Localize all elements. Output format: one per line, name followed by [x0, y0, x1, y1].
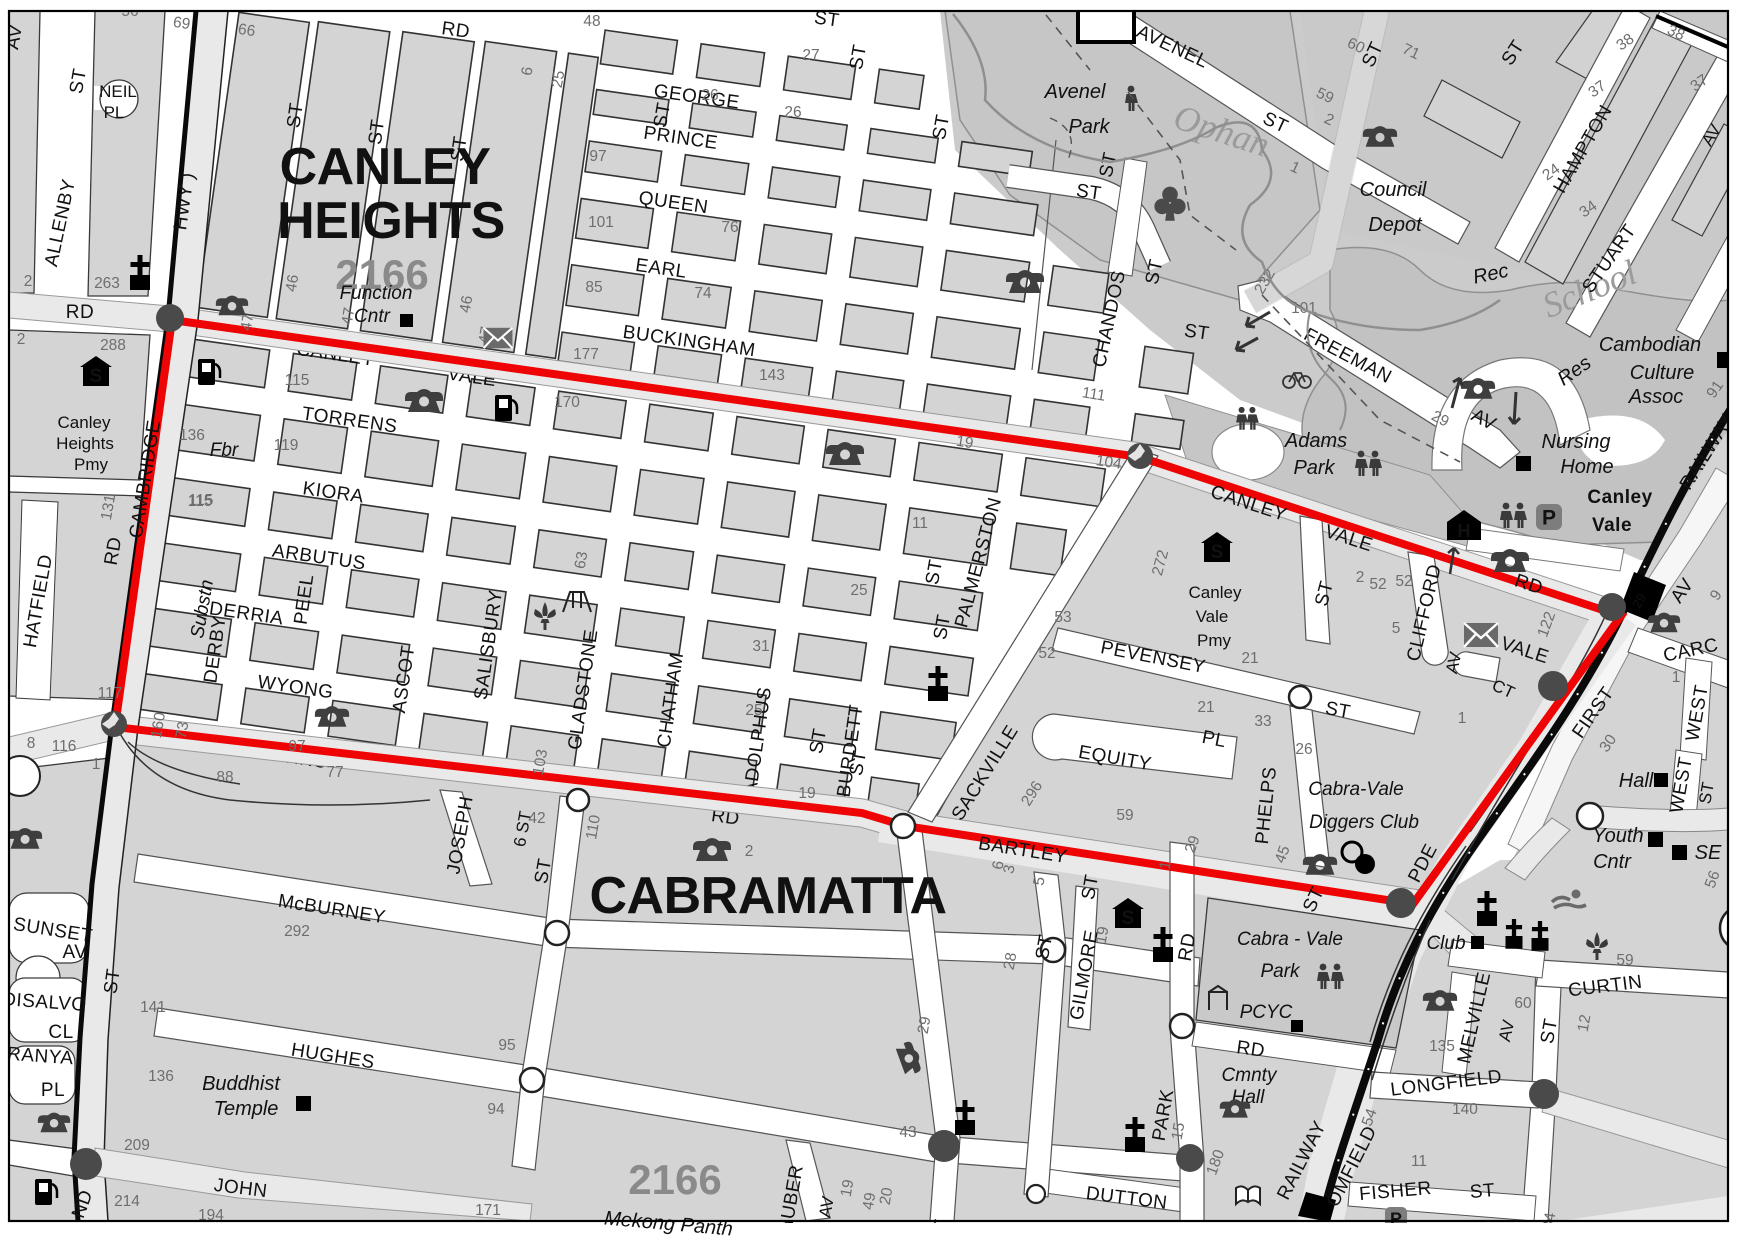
svg-text:60: 60 [1514, 995, 1532, 1012]
svg-text:Culture: Culture [1630, 362, 1694, 384]
svg-text:ST: ST [1537, 1017, 1562, 1046]
svg-text:27: 27 [802, 47, 819, 64]
svg-text:Hall: Hall [1619, 770, 1654, 792]
svg-text:15: 15 [1169, 1121, 1189, 1141]
svg-text:76: 76 [721, 219, 738, 236]
svg-text:117: 117 [98, 685, 123, 702]
svg-text:Cabra - Vale: Cabra - Vale [1237, 929, 1343, 950]
svg-text:101: 101 [588, 214, 614, 231]
svg-text:NEIL: NEIL [99, 82, 137, 101]
svg-text:ST: ST [1469, 1180, 1496, 1203]
svg-text:288: 288 [100, 337, 126, 354]
svg-text:1: 1 [1458, 710, 1467, 727]
svg-text:Temple: Temple [214, 1098, 279, 1120]
svg-text:ST: ST [846, 749, 871, 778]
svg-text:97: 97 [589, 148, 606, 165]
svg-text:73: 73 [173, 720, 193, 740]
svg-text:ST: ST [1324, 698, 1353, 723]
svg-text:143: 143 [759, 367, 785, 384]
svg-text:69: 69 [172, 14, 191, 33]
svg-text:19: 19 [1093, 925, 1113, 945]
svg-text:ST: ST [930, 613, 955, 642]
svg-text:42: 42 [528, 810, 545, 827]
svg-text:19: 19 [798, 785, 815, 802]
svg-text:21: 21 [1197, 699, 1214, 716]
svg-text:Vale: Vale [1196, 607, 1229, 626]
svg-text:CANLEY: CANLEY [280, 138, 491, 196]
svg-text:ST: ST [1695, 781, 1717, 806]
svg-text:PCYC: PCYC [1240, 1002, 1293, 1023]
svg-text:66: 66 [237, 21, 256, 40]
svg-text:88: 88 [216, 769, 233, 786]
svg-text:Canley: Canley [1587, 487, 1652, 508]
svg-text:PL: PL [104, 103, 125, 122]
svg-text:Cabra-Vale: Cabra-Vale [1308, 779, 1403, 800]
svg-text:171: 171 [475, 1202, 501, 1219]
svg-text:2: 2 [1356, 569, 1365, 586]
svg-text:Function: Function [340, 283, 413, 304]
svg-text:Adams: Adams [1284, 430, 1347, 452]
svg-text:26: 26 [701, 87, 718, 104]
svg-text:2: 2 [24, 273, 33, 290]
svg-text:Youth: Youth [1592, 825, 1643, 847]
svg-text:177: 177 [573, 346, 599, 363]
svg-text:ST: ST [1075, 180, 1103, 204]
svg-text:ST: ST [1183, 320, 1211, 344]
svg-text:209: 209 [124, 1137, 150, 1154]
svg-text:ST: ST [922, 558, 947, 587]
svg-text:33: 33 [1254, 713, 1271, 730]
svg-text:21: 21 [1241, 650, 1258, 667]
svg-text:Cntr: Cntr [354, 306, 391, 327]
svg-text:2: 2 [17, 331, 26, 348]
svg-text:Cambodian: Cambodian [1599, 334, 1701, 356]
svg-text:CABRAMATTA: CABRAMATTA [590, 867, 947, 925]
svg-text:ST: ST [806, 727, 831, 756]
svg-text:Park: Park [1293, 457, 1335, 479]
svg-text:115: 115 [285, 372, 310, 389]
svg-text:2166: 2166 [628, 1156, 721, 1203]
svg-text:46: 46 [457, 294, 477, 314]
svg-text:136: 136 [179, 427, 205, 444]
svg-text:11: 11 [1411, 1153, 1427, 1170]
svg-text:ST: ST [1078, 873, 1103, 902]
svg-text:RD: RD [440, 18, 471, 43]
svg-text:94: 94 [487, 1101, 505, 1118]
svg-text:Pmy: Pmy [74, 455, 109, 474]
svg-text:59: 59 [1616, 952, 1633, 969]
svg-text:Council: Council [1360, 179, 1427, 201]
svg-text:PL: PL [41, 1080, 65, 1101]
svg-text:77: 77 [326, 764, 343, 781]
svg-text:Club: Club [1426, 933, 1465, 954]
svg-text:8: 8 [27, 735, 36, 752]
svg-text:48: 48 [583, 13, 600, 30]
svg-text:95: 95 [498, 1037, 515, 1054]
svg-text:ST: ST [283, 101, 307, 129]
svg-text:11: 11 [912, 515, 928, 532]
svg-text:52: 52 [1038, 645, 1055, 662]
svg-text:26: 26 [1295, 741, 1312, 758]
svg-text:Pmy: Pmy [1197, 631, 1232, 650]
svg-text:Cntr: Cntr [1593, 851, 1632, 873]
svg-text:Nursing: Nursing [1542, 431, 1611, 453]
svg-text:53: 53 [1054, 609, 1071, 626]
svg-text:119: 119 [274, 437, 299, 454]
svg-text:5: 5 [1392, 620, 1401, 637]
svg-text:140: 140 [1452, 1101, 1478, 1118]
svg-text:Vale: Vale [1592, 515, 1632, 536]
svg-text:RD: RD [1235, 1037, 1266, 1062]
svg-text:19: 19 [955, 433, 975, 452]
svg-text:Buddhist: Buddhist [202, 1073, 281, 1095]
svg-text:28: 28 [1001, 951, 1021, 971]
svg-text:85: 85 [585, 279, 602, 296]
svg-text:Park: Park [1068, 116, 1110, 138]
svg-text:RD: RD [66, 302, 94, 323]
svg-text:170: 170 [554, 394, 580, 411]
svg-text:25: 25 [549, 69, 569, 89]
svg-text:74: 74 [694, 285, 712, 302]
svg-text:52: 52 [1369, 576, 1386, 593]
svg-text:HEIGHTS: HEIGHTS [277, 192, 505, 250]
svg-text:Heights: Heights [56, 434, 114, 453]
svg-text:214: 214 [114, 1193, 140, 1210]
svg-text:47: 47 [238, 312, 258, 332]
svg-text:20: 20 [877, 1186, 897, 1206]
svg-text:ST: ST [100, 967, 124, 995]
svg-text:Diggers Club: Diggers Club [1309, 812, 1419, 833]
svg-text:ST: ST [531, 857, 556, 886]
svg-text:135: 135 [1429, 1038, 1455, 1055]
svg-text:ST: ST [846, 43, 871, 72]
svg-text:1: 1 [92, 756, 101, 773]
svg-text:63: 63 [572, 550, 592, 570]
svg-text:52: 52 [1395, 573, 1412, 590]
svg-text:141: 141 [140, 999, 166, 1016]
svg-text:116: 116 [52, 738, 77, 755]
svg-text:31: 31 [752, 638, 769, 655]
svg-text:ST: ST [66, 67, 91, 96]
svg-text:12: 12 [1575, 1013, 1595, 1033]
svg-text:292: 292 [284, 923, 310, 940]
svg-text:43: 43 [899, 1124, 916, 1141]
svg-text:Depot: Depot [1368, 214, 1423, 236]
svg-text:115: 115 [189, 492, 214, 509]
svg-text:AV: AV [63, 942, 88, 963]
svg-text:136: 136 [148, 1068, 174, 1085]
svg-text:263: 263 [94, 275, 120, 292]
svg-text:Assoc: Assoc [1628, 386, 1683, 408]
svg-text:1: 1 [1672, 669, 1681, 686]
svg-text:26: 26 [784, 104, 801, 121]
svg-text:Park: Park [1260, 961, 1301, 982]
svg-text:Fbr: Fbr [210, 440, 239, 461]
svg-text:ST: ST [650, 101, 675, 130]
svg-text:97: 97 [288, 738, 305, 755]
svg-text:Avenel: Avenel [1044, 81, 1106, 103]
svg-text:CL: CL [48, 1022, 73, 1043]
svg-text:ST: ST [929, 113, 954, 142]
svg-text:46: 46 [283, 273, 303, 293]
svg-text:25: 25 [850, 582, 867, 599]
svg-text:AV: AV [815, 1194, 838, 1219]
svg-text:SE: SE [1695, 842, 1722, 864]
svg-text:Home: Home [1560, 456, 1613, 478]
svg-text:29: 29 [915, 1015, 935, 1035]
svg-text:Cmnty: Cmnty [1222, 1065, 1278, 1086]
svg-text:59: 59 [1116, 807, 1133, 824]
svg-text:Canley: Canley [58, 413, 111, 432]
svg-text:Canley: Canley [1189, 583, 1242, 602]
svg-text:19: 19 [838, 1178, 858, 1198]
svg-text:111: 111 [1081, 384, 1107, 404]
svg-text:ST: ST [1032, 933, 1057, 962]
svg-text:2: 2 [745, 843, 754, 860]
svg-text:25: 25 [745, 702, 762, 719]
